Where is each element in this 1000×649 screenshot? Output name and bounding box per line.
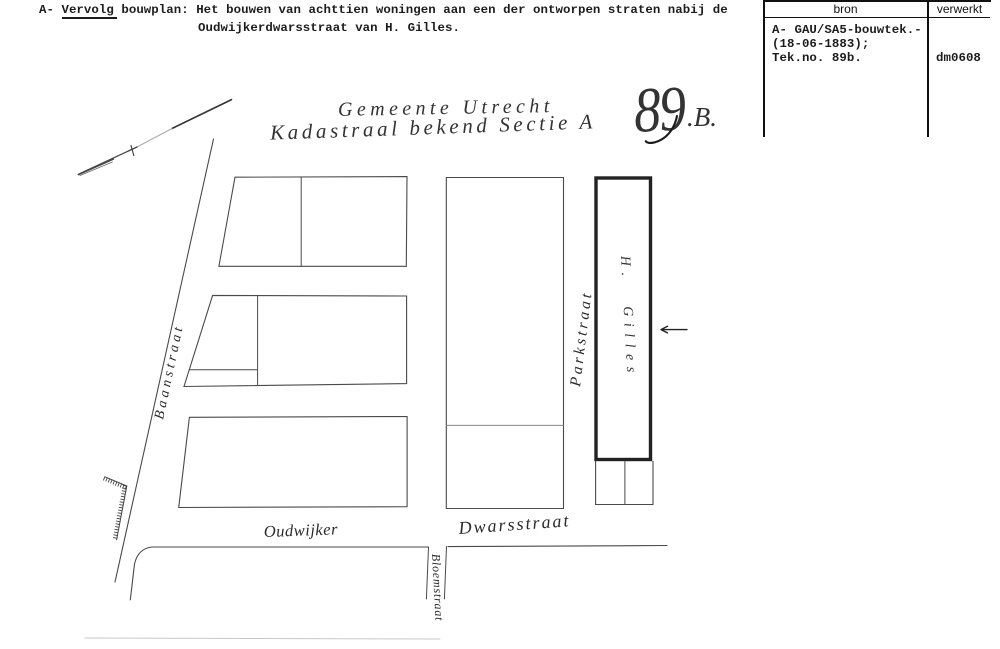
svg-text:Dwarsstraat: Dwarsstraat (457, 510, 571, 538)
svg-text:Oudwijker: Oudwijker (263, 519, 338, 541)
svg-text:Baanstraat: Baanstraat (152, 323, 187, 421)
svg-text:Parkstraat: Parkstraat (567, 290, 596, 389)
svg-text:Bloemstraat: Bloemstraat (429, 553, 447, 621)
svg-text:H. Gilles: H. Gilles (617, 254, 638, 379)
